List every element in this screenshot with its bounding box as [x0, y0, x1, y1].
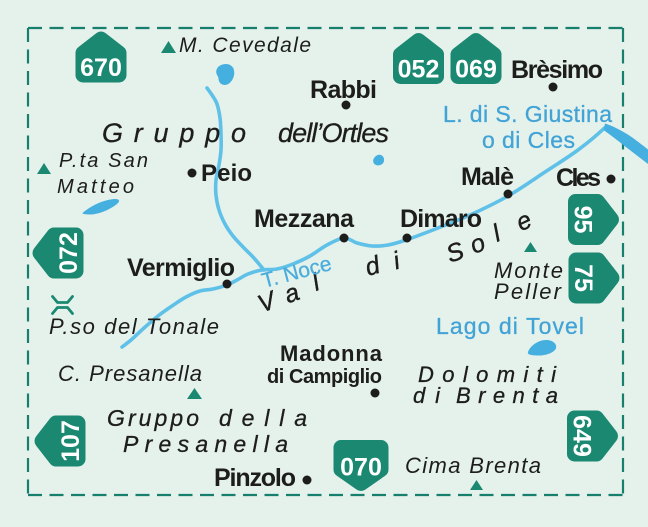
svg-text:069: 069 [455, 56, 497, 84]
svg-text:M. Cevedale: M. Cevedale [179, 34, 311, 57]
svg-text:Malè: Malè [461, 163, 514, 191]
svg-text:Cima Brenta: Cima Brenta [405, 453, 541, 478]
svg-text:Mezzana: Mezzana [254, 205, 355, 233]
svg-text:107: 107 [57, 420, 85, 462]
svg-text:Presanella: Presanella [123, 431, 288, 457]
svg-text:L. di S. Giustina: L. di S. Giustina [443, 101, 612, 127]
svg-text:Lago di Tovel: Lago di Tovel [436, 313, 584, 339]
svg-text:di Campiglio: di Campiglio [267, 366, 382, 388]
svg-text:Peio: Peio [201, 160, 252, 187]
svg-text:95: 95 [569, 206, 597, 234]
svg-text:Cles: Cles [556, 164, 601, 192]
svg-text:Matteo: Matteo [57, 176, 134, 198]
svg-text:75: 75 [569, 264, 597, 292]
svg-text:670: 670 [80, 54, 122, 82]
svg-text:070: 070 [340, 454, 382, 482]
svg-text:072: 072 [55, 232, 83, 274]
svg-text:649: 649 [568, 415, 596, 457]
svg-text:Pinzolo: Pinzolo [214, 464, 296, 492]
svg-text:C. Presanella: C. Presanella [58, 361, 202, 386]
svg-text:P.so del Tonale: P.so del Tonale [49, 314, 219, 339]
svg-text:Dimaro: Dimaro [400, 205, 482, 233]
svg-text:052: 052 [398, 56, 440, 84]
svg-text:P.ta San: P.ta San [59, 150, 148, 172]
svg-text:o di Cles: o di Cles [482, 127, 575, 153]
svg-text:Vermiglio: Vermiglio [127, 254, 235, 282]
svg-text:Brèsimo: Brèsimo [511, 56, 603, 84]
svg-text:Madonna: Madonna [280, 341, 383, 366]
svg-text:Rabbi: Rabbi [310, 76, 377, 104]
svg-text:dell’Ortles: dell’Ortles [278, 118, 389, 148]
